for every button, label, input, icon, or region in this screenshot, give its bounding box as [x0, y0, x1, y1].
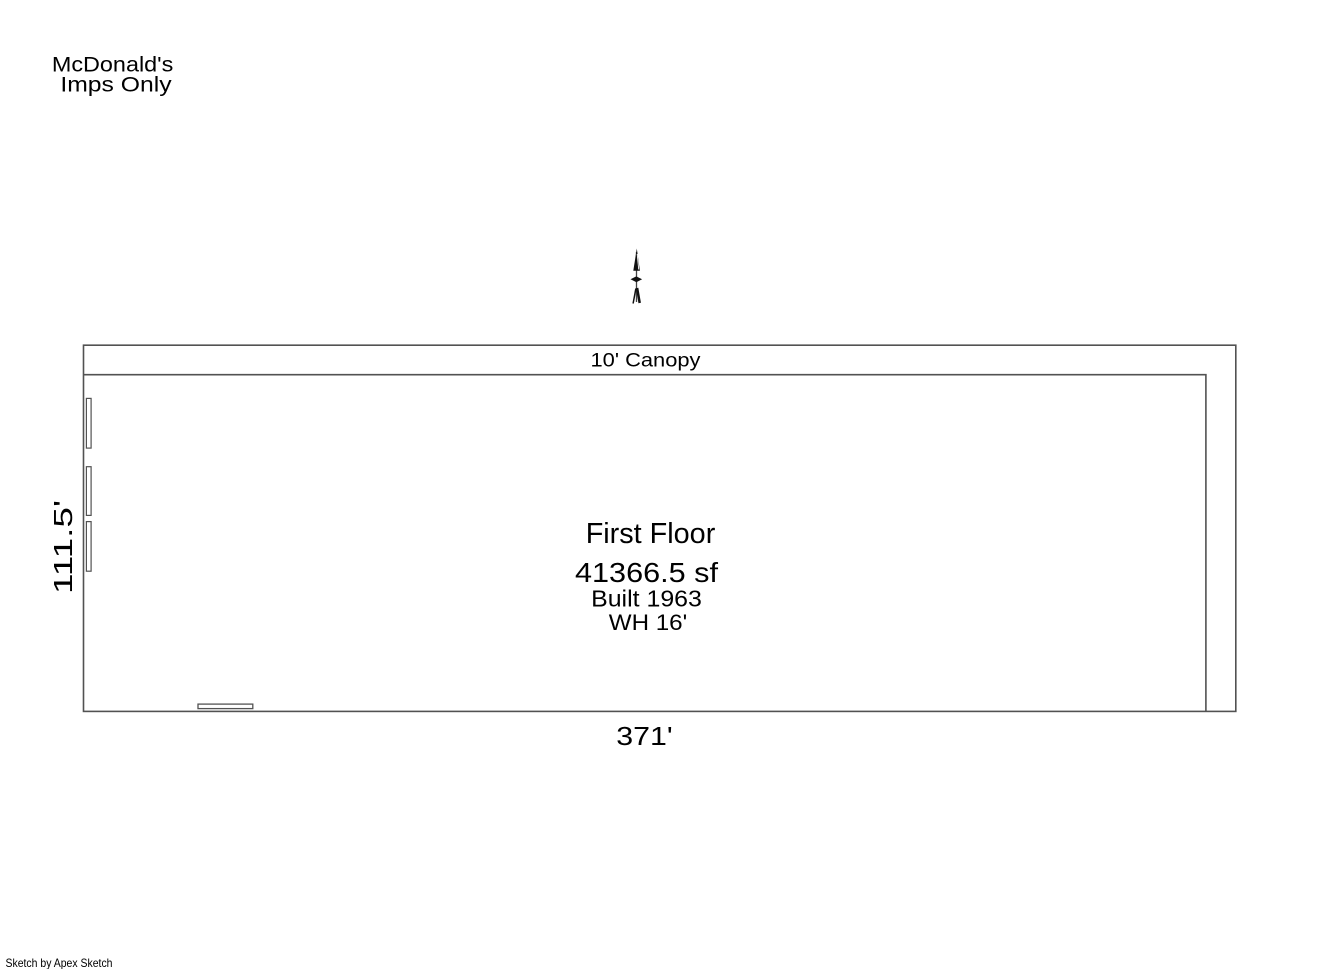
svg-text:Imps Only: Imps Only	[60, 74, 172, 97]
svg-text:WH 16': WH 16'	[609, 610, 688, 635]
svg-text:371': 371'	[616, 721, 672, 751]
svg-text:Sketch by Apex Sketch: Sketch by Apex Sketch	[6, 956, 113, 969]
svg-text:Built 1963: Built 1963	[591, 586, 702, 612]
svg-text:41366.5 sf: 41366.5 sf	[575, 557, 718, 588]
svg-text:10' Canopy: 10' Canopy	[591, 351, 702, 372]
svg-text:111.5': 111.5'	[48, 500, 78, 594]
svg-text:First Floor: First Floor	[586, 518, 716, 550]
